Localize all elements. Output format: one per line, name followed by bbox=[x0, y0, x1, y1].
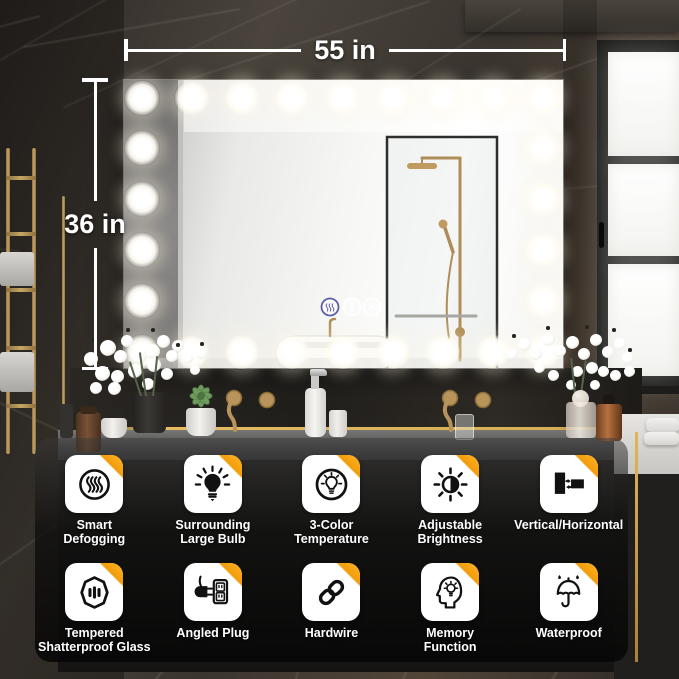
led-bulb bbox=[174, 80, 210, 116]
reflected-side-wall bbox=[124, 80, 178, 368]
orchid-flower bbox=[530, 348, 542, 360]
soap-dispenser-neck bbox=[311, 374, 319, 389]
adjustable-brightness-icon bbox=[421, 455, 479, 513]
brown-jar-lid bbox=[80, 406, 97, 414]
orchid-flower bbox=[121, 335, 133, 347]
defog-control bbox=[322, 299, 339, 316]
angled-plug-icon bbox=[184, 563, 242, 621]
flower-bud bbox=[546, 326, 550, 330]
orchid-flower bbox=[602, 346, 614, 358]
orchid-flower bbox=[590, 380, 600, 390]
feature-label: Hardwire bbox=[305, 626, 359, 640]
temperature-control bbox=[364, 299, 381, 316]
feature-label: Waterproof bbox=[536, 626, 602, 640]
feature-item: Tempered Shatterproof Glass bbox=[35, 563, 154, 655]
orchid-flower bbox=[90, 382, 102, 394]
soap-dispenser bbox=[305, 388, 326, 437]
orchid-flower bbox=[624, 366, 635, 377]
led-bulb bbox=[525, 80, 561, 116]
vertical-horizontal-icon bbox=[540, 455, 598, 513]
memory-function-icon bbox=[421, 563, 479, 621]
surrounding-large-bulb-icon bbox=[184, 455, 242, 513]
mirror bbox=[124, 80, 563, 368]
flower-bud bbox=[176, 343, 180, 347]
perfume-bottle-amber bbox=[596, 404, 622, 441]
led-bulb bbox=[425, 334, 461, 370]
orchid-flower bbox=[554, 345, 566, 357]
led-bulb bbox=[525, 232, 561, 268]
orchid-flower bbox=[622, 352, 634, 364]
feature-label: 3-Color Temperature bbox=[294, 518, 369, 547]
feature-item: Adjustable Brightness bbox=[391, 455, 510, 547]
smart-defogging-icon bbox=[65, 455, 123, 513]
left-faucet bbox=[218, 388, 284, 432]
led-bulb bbox=[325, 80, 361, 116]
led-bulb bbox=[375, 80, 411, 116]
counter-gold-trim bbox=[84, 427, 640, 430]
feature-item: Smart Defogging bbox=[35, 455, 154, 547]
feature-label: Memory Function bbox=[424, 626, 477, 655]
led-bulb bbox=[325, 334, 361, 370]
led-bulb bbox=[525, 181, 561, 217]
window-handle-icon bbox=[599, 222, 604, 248]
feature-label: Smart Defogging bbox=[63, 518, 125, 547]
product-image: 55 in 36 in bbox=[0, 0, 679, 679]
feature-label: Angled Plug bbox=[176, 626, 249, 640]
feature-label: Adjustable Brightness bbox=[417, 518, 482, 547]
height-dimension-label: 36 in bbox=[64, 209, 126, 240]
dimension-tick bbox=[82, 367, 108, 371]
glass-tumbler bbox=[455, 414, 474, 440]
bathroom-cup bbox=[329, 410, 347, 437]
3-color-temperature-icon bbox=[302, 455, 360, 513]
orchid-flower bbox=[548, 370, 559, 381]
led-bulb bbox=[425, 80, 461, 116]
feature-item: Angled Plug bbox=[154, 563, 273, 655]
led-bulb bbox=[375, 334, 411, 370]
tempered-shatterproof-glass-icon bbox=[65, 563, 123, 621]
succulent-pot bbox=[186, 408, 216, 436]
window bbox=[597, 40, 679, 388]
orchid-flower bbox=[114, 350, 127, 363]
feature-item: Memory Function bbox=[391, 563, 510, 655]
orchid-flower bbox=[578, 348, 590, 360]
dimension-line bbox=[94, 248, 97, 367]
flower-vase bbox=[133, 392, 166, 433]
feature-item: Vertical/Horizontal bbox=[509, 455, 628, 547]
width-dimension-label: 55 in bbox=[314, 35, 376, 66]
flower-bud bbox=[151, 328, 155, 332]
led-bulb bbox=[124, 80, 160, 116]
orchid-flower bbox=[566, 336, 579, 349]
orchid-flower bbox=[182, 353, 193, 364]
led-bulb bbox=[525, 130, 561, 166]
flower-bud bbox=[512, 334, 516, 338]
orchid-flower bbox=[542, 333, 555, 346]
brightness-control bbox=[344, 299, 361, 316]
perfume-bottle-clear bbox=[566, 402, 596, 438]
feature-overlay-panel: Smart DefoggingSurrounding Large Bulb3-C… bbox=[35, 438, 628, 662]
orchid-flower bbox=[108, 382, 121, 395]
led-bulb bbox=[224, 334, 260, 370]
orchid-flower bbox=[586, 362, 598, 374]
waterproof-icon bbox=[540, 563, 598, 621]
feature-label: Surrounding Large Bulb bbox=[175, 518, 250, 547]
soap-dispenser-spout bbox=[310, 369, 327, 376]
height-dimension: 36 in bbox=[82, 78, 108, 370]
orchid-flower bbox=[196, 348, 207, 359]
led-bulb bbox=[224, 80, 260, 116]
vanity-gold-frame bbox=[635, 432, 638, 662]
width-dimension: 55 in bbox=[124, 37, 566, 63]
feature-item: Hardwire bbox=[272, 563, 391, 655]
led-bulb bbox=[124, 232, 160, 268]
feature-item: Surrounding Large Bulb bbox=[154, 455, 273, 547]
led-bulb bbox=[124, 181, 160, 217]
orchid-flower bbox=[590, 334, 602, 346]
pump-bottle bbox=[60, 404, 73, 438]
orchid-flower bbox=[157, 335, 170, 348]
flower-bud bbox=[628, 348, 632, 352]
flower-bud bbox=[612, 328, 616, 332]
dimension-tick bbox=[563, 39, 567, 61]
feature-label: Tempered Shatterproof Glass bbox=[38, 626, 151, 655]
orchid-flower bbox=[190, 365, 200, 375]
feature-item: 3-Color Temperature bbox=[272, 455, 391, 547]
dimension-line bbox=[94, 82, 97, 201]
orchid-flower bbox=[161, 368, 173, 380]
flower-bud bbox=[200, 342, 204, 346]
mirror-touch-controls bbox=[322, 299, 381, 316]
hardwire-icon bbox=[302, 563, 360, 621]
led-bulb bbox=[124, 283, 160, 319]
orchid-flower bbox=[518, 338, 531, 351]
led-bulb bbox=[525, 283, 561, 319]
led-bulb bbox=[475, 80, 511, 116]
reflected-rain-shower-head bbox=[407, 163, 437, 169]
window-pane bbox=[608, 264, 679, 376]
feature-label: Vertical/Horizontal bbox=[514, 518, 623, 532]
window-pane bbox=[608, 52, 679, 156]
white-pot bbox=[101, 418, 127, 438]
dimension-line bbox=[128, 49, 302, 52]
folded-towels bbox=[646, 418, 679, 432]
orchid-flower bbox=[534, 362, 545, 373]
flower-bud bbox=[585, 325, 589, 329]
orchid-flower bbox=[598, 366, 609, 377]
orchid-flower bbox=[506, 348, 518, 360]
orchid-flower bbox=[610, 370, 621, 381]
folded-towels bbox=[644, 432, 679, 445]
flower-bud bbox=[126, 328, 130, 332]
dimension-line bbox=[389, 49, 563, 52]
led-bulb bbox=[124, 130, 160, 166]
window-pane bbox=[608, 164, 679, 256]
orchid-flower bbox=[614, 338, 626, 350]
feature-item: Waterproof bbox=[509, 563, 628, 655]
